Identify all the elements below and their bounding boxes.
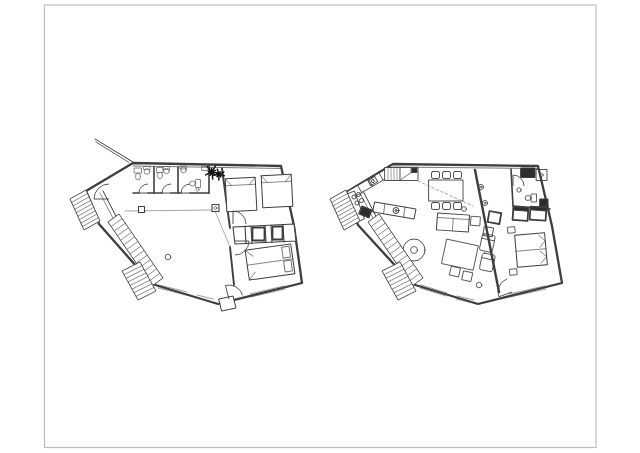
dining-table <box>429 180 463 201</box>
boundary-line <box>95 139 133 162</box>
blueprint-page <box>0 0 640 453</box>
single-bed <box>261 174 293 208</box>
column-post <box>212 205 219 212</box>
double-bed <box>515 233 548 267</box>
boundary-line-2 <box>96 142 129 163</box>
single-bed <box>225 177 257 212</box>
double-bed <box>245 244 295 280</box>
blueprint-canvas <box>0 0 640 453</box>
shower-dark <box>521 168 535 178</box>
dark-block <box>540 199 548 207</box>
column-post <box>139 207 145 213</box>
tall-cabinet <box>385 168 418 181</box>
entrance-door-leaf <box>219 296 236 311</box>
